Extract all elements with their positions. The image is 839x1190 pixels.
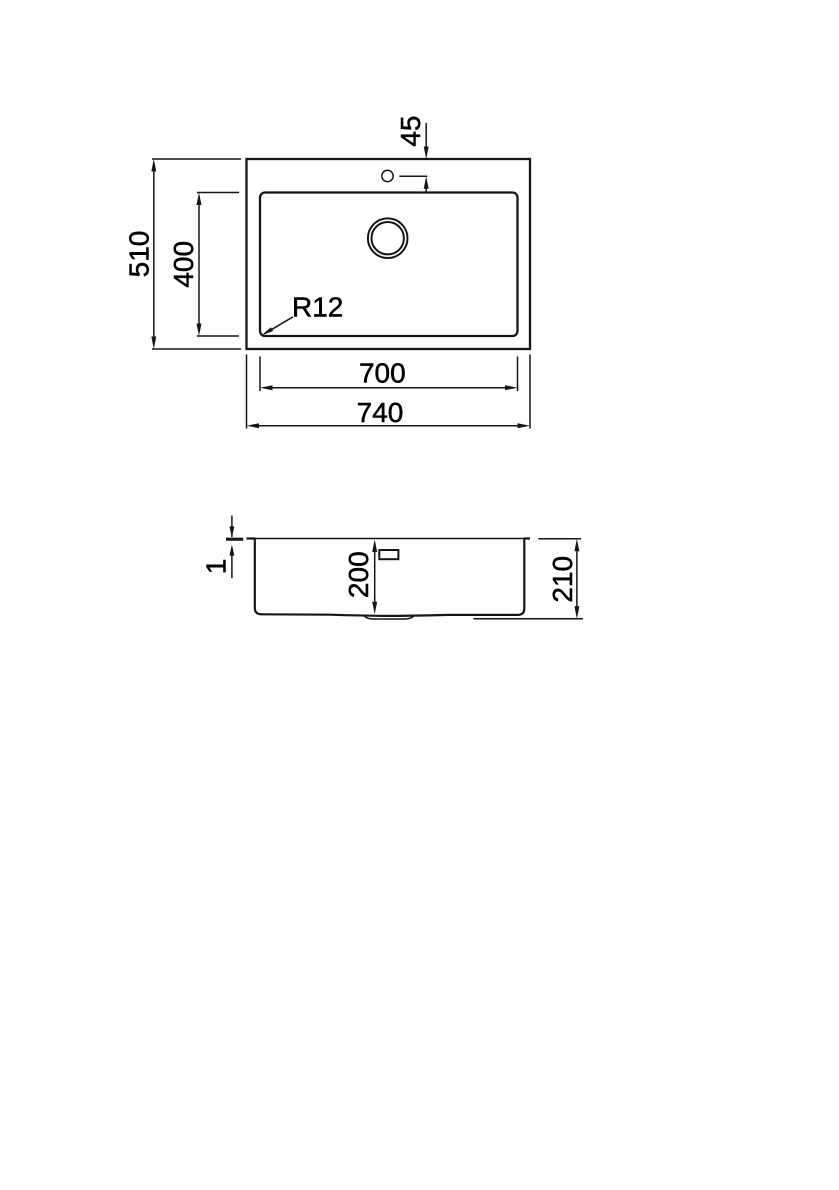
svg-text:740: 740 <box>357 397 404 428</box>
svg-text:45: 45 <box>395 116 426 147</box>
svg-text:R12: R12 <box>292 292 343 323</box>
svg-text:700: 700 <box>359 358 406 389</box>
svg-text:510: 510 <box>124 231 155 278</box>
svg-text:200: 200 <box>343 551 374 598</box>
svg-text:210: 210 <box>547 556 578 603</box>
svg-text:400: 400 <box>168 241 199 288</box>
svg-text:1: 1 <box>201 559 232 575</box>
